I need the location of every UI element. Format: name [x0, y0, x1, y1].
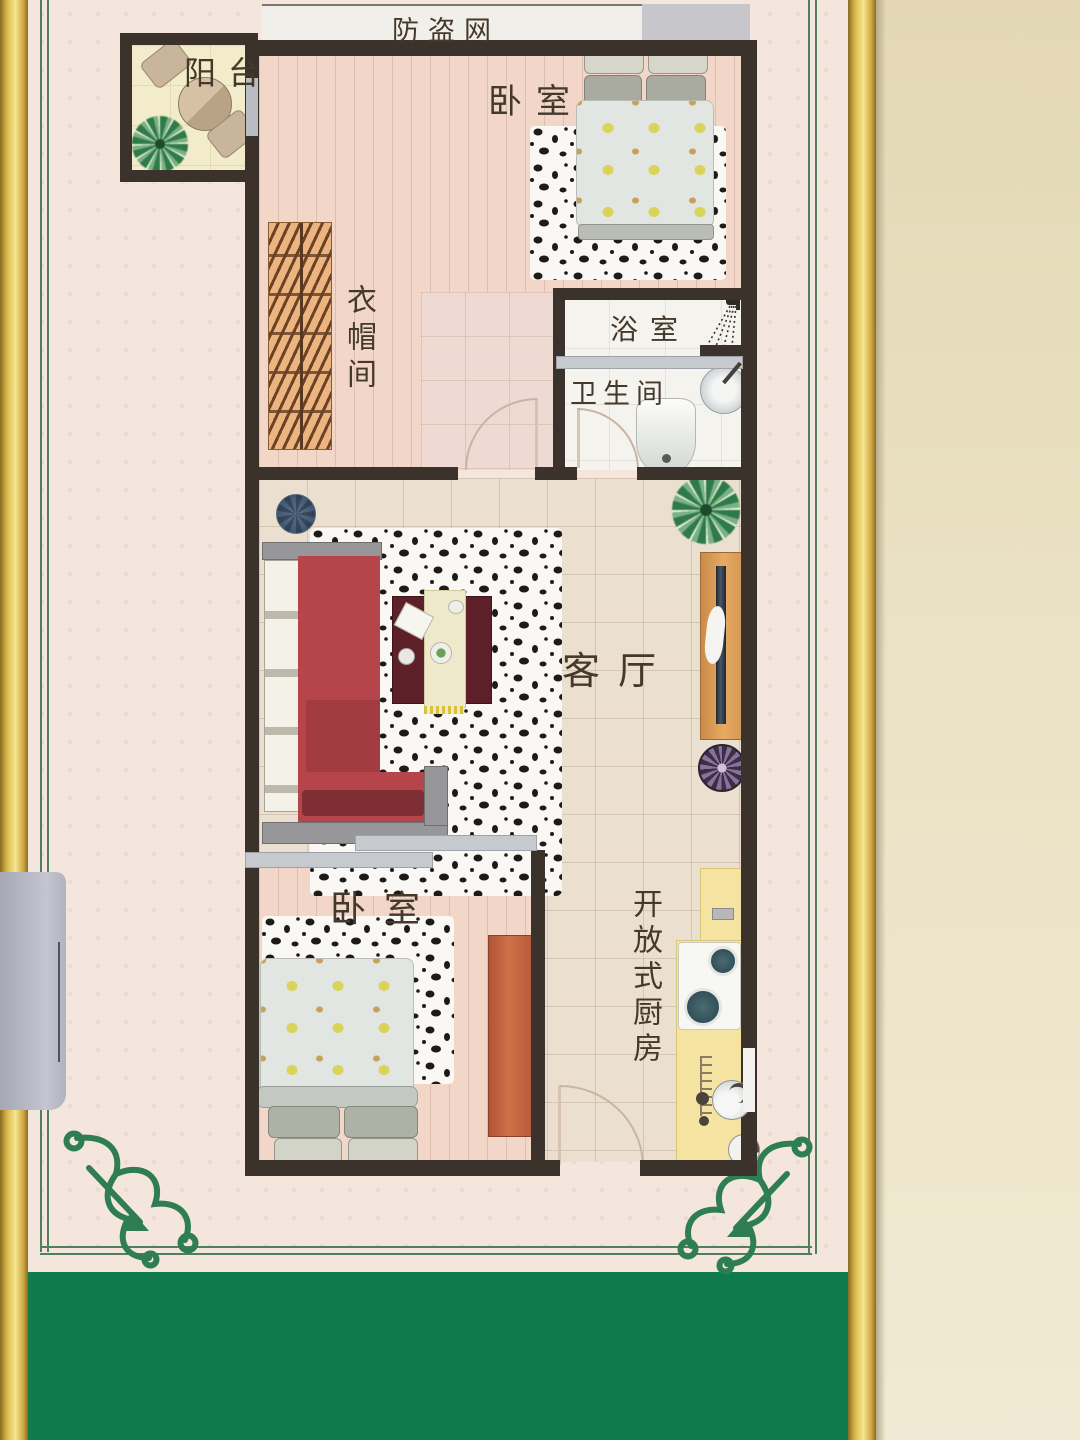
table-runner-fringe	[424, 706, 464, 714]
wall-left	[245, 40, 259, 1176]
sofa-bolster	[302, 790, 424, 816]
balcony-wall-left	[120, 33, 132, 182]
plate-icon	[430, 642, 452, 664]
sink-knob	[699, 1116, 709, 1126]
wall-mid-right	[637, 467, 757, 480]
bed-pillow	[344, 1106, 418, 1138]
label-bedroom-top: 卧室	[488, 74, 584, 123]
label-balcony: 阳台	[184, 48, 272, 94]
green-footer-band	[28, 1272, 848, 1440]
cup-icon	[398, 648, 415, 665]
living-sliding-door-lower	[245, 852, 433, 868]
label-bathroom: 浴室	[610, 308, 690, 348]
living-sliding-door-upper	[355, 835, 537, 851]
kitchen-window	[743, 1048, 755, 1112]
sink-knob	[696, 1092, 709, 1105]
label-cloakroom: 衣帽间	[336, 284, 380, 395]
label-bedroom-bottom: 卧室	[330, 880, 438, 932]
bed-pillow	[268, 1106, 340, 1138]
balcony-plant-icon	[132, 116, 188, 172]
stool-icon	[698, 744, 746, 792]
stove-burner	[708, 946, 738, 976]
bedroom-bottom-wall-right	[531, 850, 545, 1162]
balcony-wall-top	[120, 33, 258, 45]
cloakroom-rack	[268, 222, 332, 450]
shower-icon	[696, 296, 744, 348]
bed-foot-bar	[578, 224, 714, 240]
counter-item	[712, 908, 734, 920]
label-toilet: 卫生间	[570, 372, 669, 411]
wardrobe	[488, 935, 534, 1137]
wall-fixture	[0, 872, 66, 1110]
corner-flourish-left	[46, 1126, 216, 1281]
kitchen-ruler-ticks	[700, 1056, 712, 1116]
sofa-cushions	[264, 560, 300, 812]
wall-mid-center	[535, 467, 577, 480]
label-living-room: 客厅	[562, 640, 674, 695]
room-wall-background	[876, 0, 1080, 1440]
kitchen-counter	[700, 868, 743, 944]
gold-frame-right	[848, 0, 876, 1440]
wall-right-plan	[741, 40, 757, 1176]
bowl-icon	[448, 600, 464, 614]
frame-shadow	[876, 0, 886, 1440]
gold-frame-left	[0, 0, 28, 1440]
bathroom-wall-left	[553, 288, 565, 470]
sofa-seat	[306, 700, 380, 778]
security-net-label: 防盗网	[392, 9, 500, 48]
wall-bottom-right	[640, 1160, 757, 1176]
wall-mid-left	[245, 467, 458, 480]
stove-burner	[684, 988, 722, 1026]
plant-pot-icon	[276, 494, 316, 534]
label-kitchen: 开放式厨房	[622, 888, 666, 1068]
bed-duvet-top	[576, 100, 714, 228]
framed-floorplan-photo: 防盗网	[0, 0, 1080, 1440]
bed-duvet-bottom	[260, 958, 414, 1100]
bathroom-sliding-door	[556, 356, 743, 369]
bathroom-wall-top	[553, 288, 741, 300]
sofa-armrest	[424, 766, 448, 826]
plant-icon	[672, 476, 740, 544]
wall-top	[245, 40, 757, 56]
balcony-wall-bottom	[120, 170, 259, 182]
bed-fold-bar	[256, 1086, 418, 1108]
wall-bottom-left	[245, 1160, 560, 1176]
green-border-right	[808, 0, 817, 1254]
